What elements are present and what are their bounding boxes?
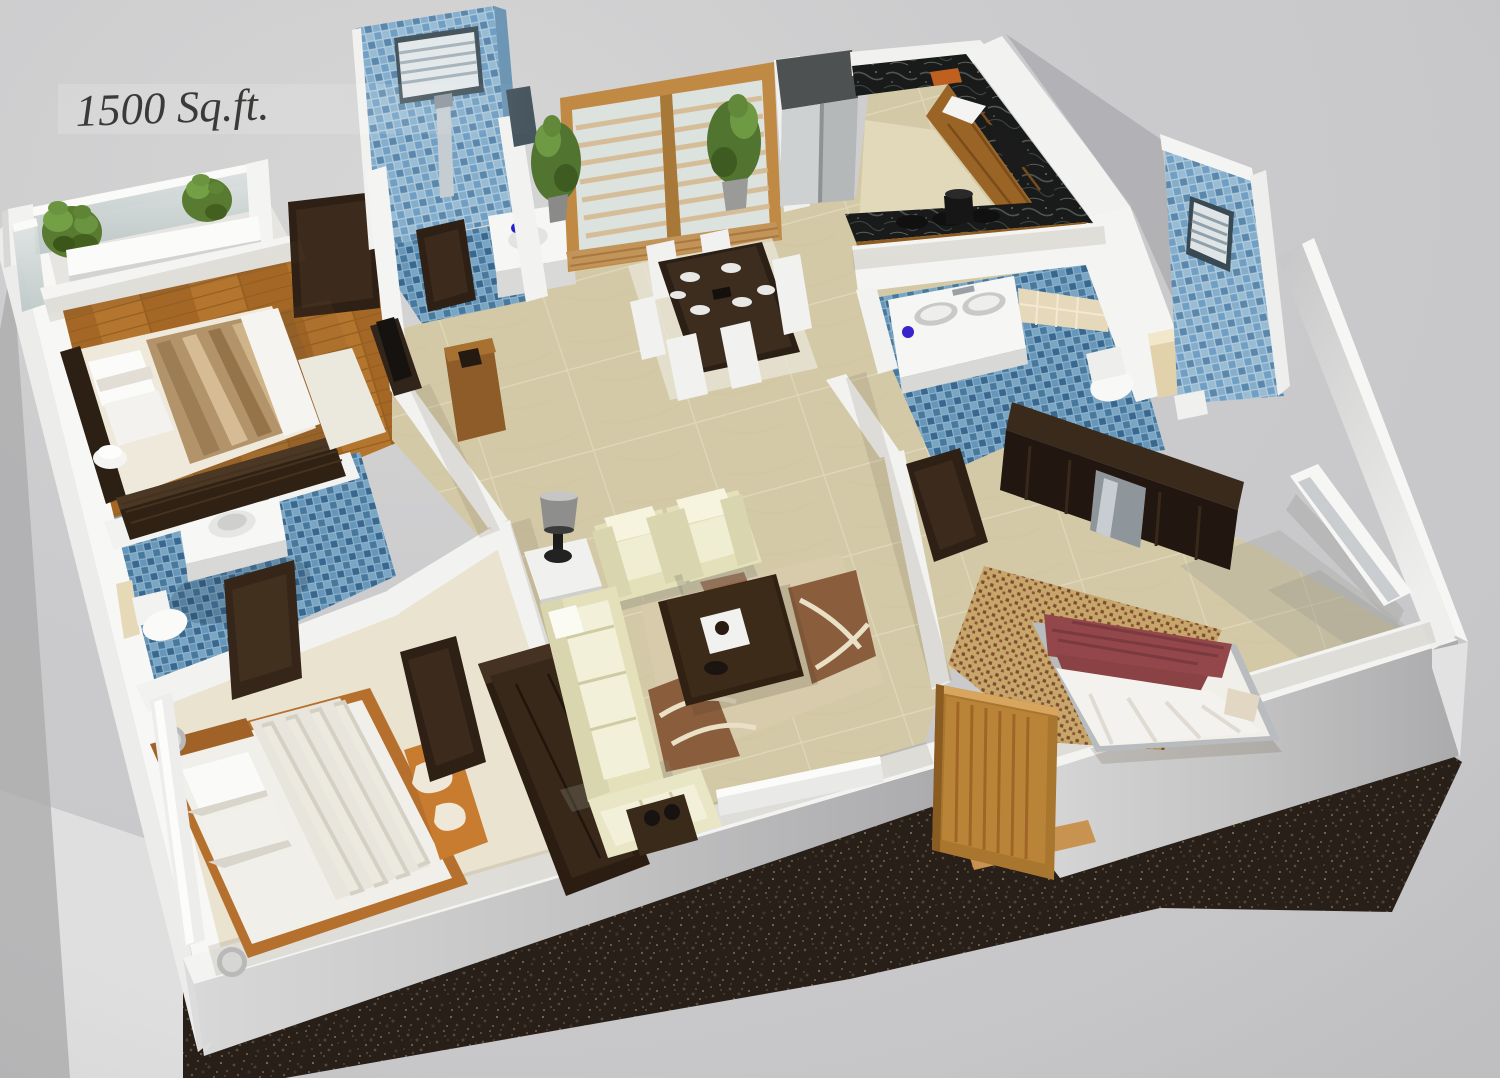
svg-text:1500 Sq.ft.: 1500 Sq.ft. [75,79,270,136]
